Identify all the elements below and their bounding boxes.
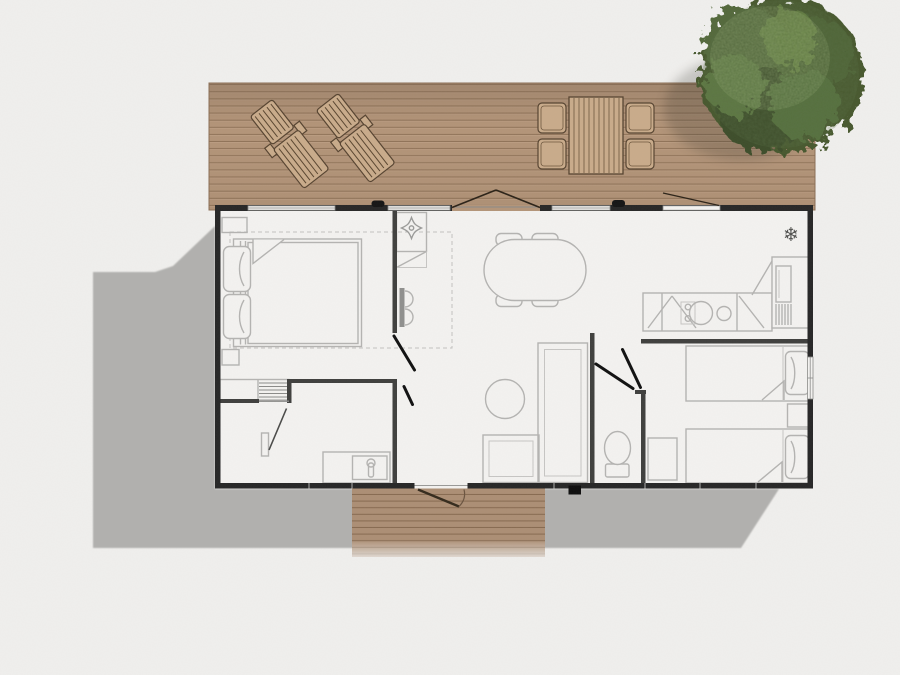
- floor-plan-svg: ❄: [0, 0, 900, 675]
- floor-plan-canvas: ❄: [0, 0, 900, 675]
- paper-grain: [0, 0, 900, 675]
